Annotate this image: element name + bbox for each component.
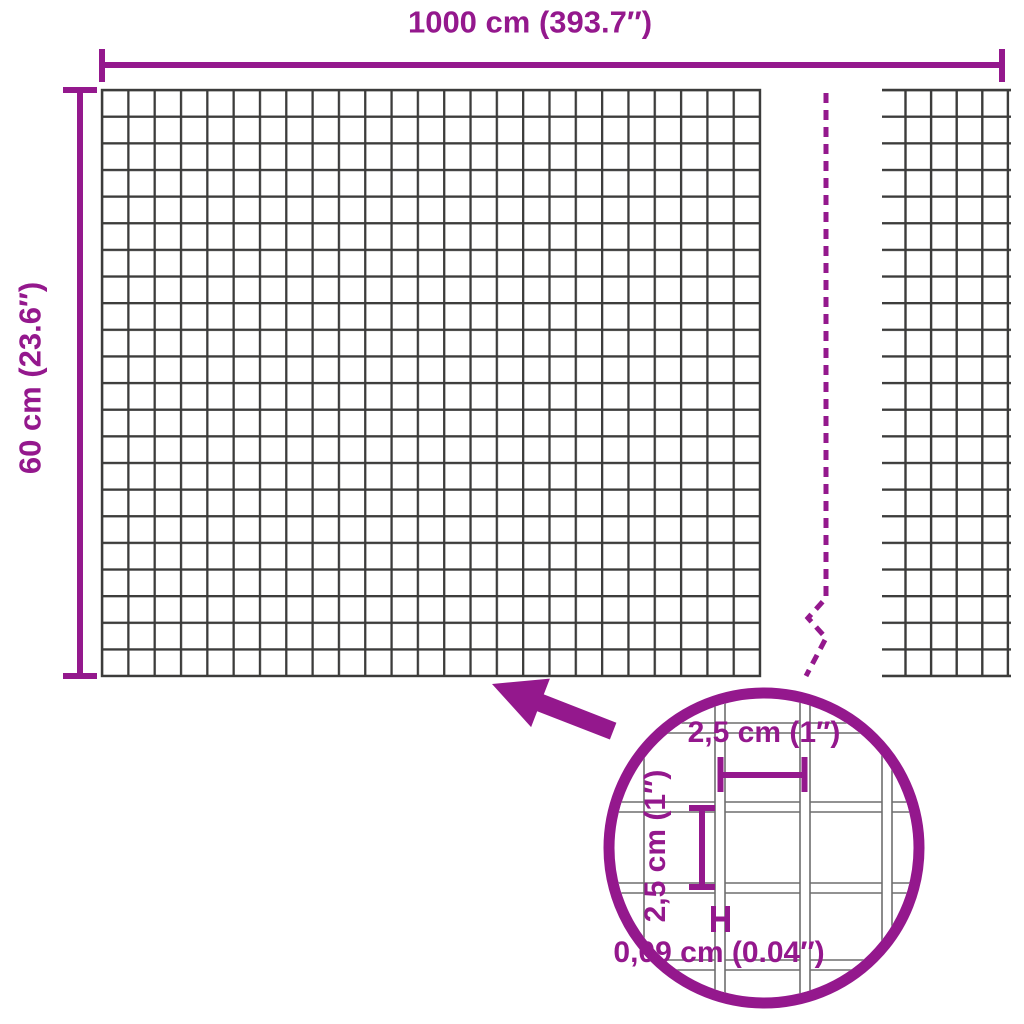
arrow-icon [492,679,616,740]
break-dashed-line [806,93,826,676]
mesh-opening-width-label: 2,5 cm (1″) [688,718,841,748]
height-dimension-line [63,90,97,676]
mesh-grid-main [102,90,760,676]
mesh-grid-right [882,90,1011,676]
height-dimension-label: 60 cm (23.6″) [15,282,46,474]
diagram-canvas: 1000 cm (393.7″) 60 cm (23.6″) 2,5 cm (1… [0,0,1024,1024]
mesh-opening-height-label: 2,5 cm (1″) [641,770,671,923]
width-dimension-label: 1000 cm (393.7″) [408,7,652,38]
wire-thickness-label: 0,09 cm (0.04″) [613,938,824,968]
diagram-graphics [0,0,1024,1024]
width-dimension-line [102,49,1002,82]
